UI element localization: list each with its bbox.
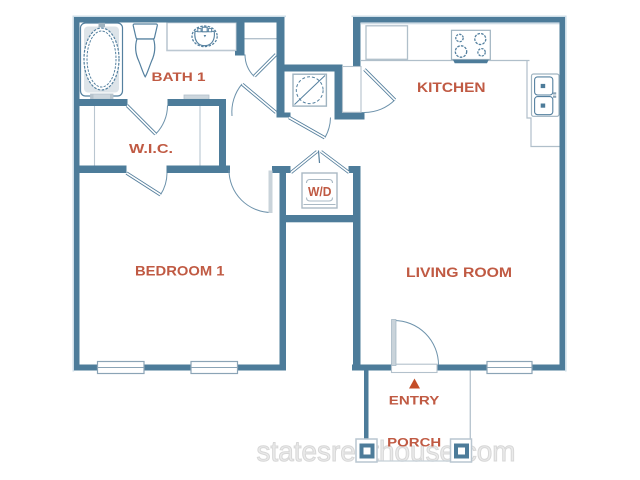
svg-text:KITCHEN: KITCHEN (417, 80, 486, 95)
svg-text:statesrenthouse.com: statesrenthouse.com (257, 436, 516, 468)
svg-text:W.I.C.: W.I.C. (129, 141, 173, 156)
svg-text:LIVING ROOM: LIVING ROOM (406, 265, 512, 280)
svg-text:BEDROOM 1: BEDROOM 1 (135, 263, 225, 279)
svg-text:BATH 1: BATH 1 (152, 72, 207, 84)
svg-text:ENTRY: ENTRY (389, 396, 440, 408)
svg-text:W/D: W/D (308, 185, 332, 199)
svg-text:PORCH: PORCH (387, 437, 441, 449)
